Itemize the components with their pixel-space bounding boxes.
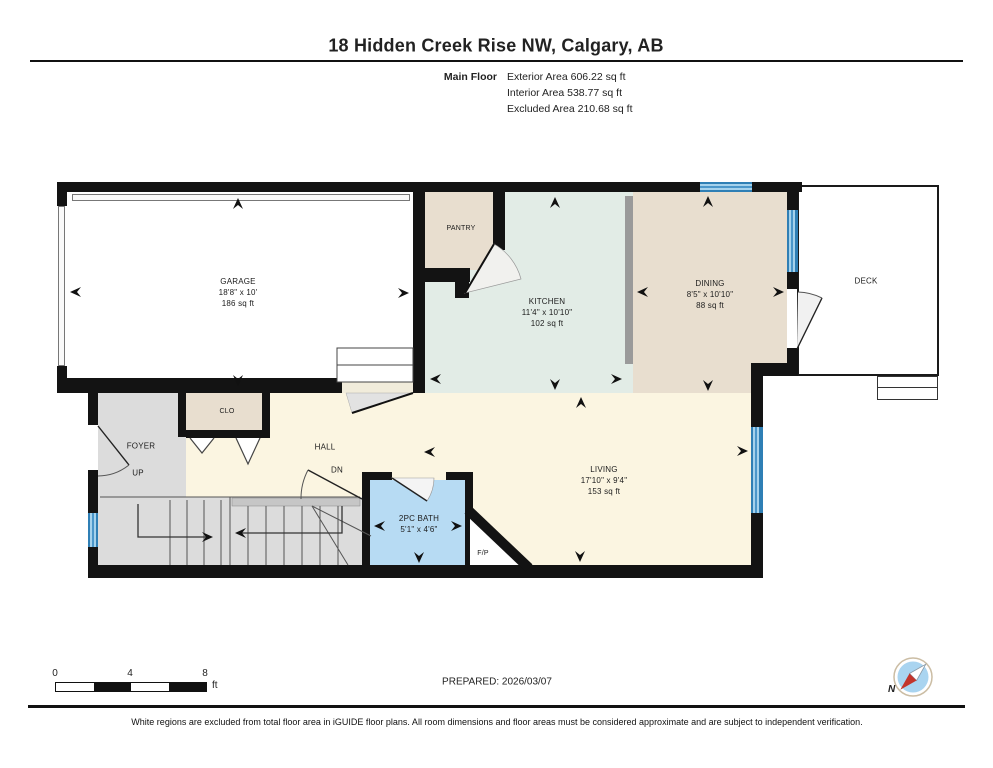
dining-floor-lower: [633, 363, 751, 393]
wall: [88, 547, 98, 565]
room-area: 186 sq ft: [219, 299, 258, 310]
room-name: CLO: [220, 407, 235, 417]
room-dims: 17'10" x 9'4": [581, 475, 627, 486]
wall: [787, 272, 798, 289]
scale-tick-4: 4: [127, 668, 133, 679]
wall: [362, 472, 392, 480]
label-up: UP: [132, 467, 144, 478]
room-name: HALL: [315, 441, 336, 452]
living-floor: [473, 497, 751, 565]
room-name: PANTRY: [447, 224, 476, 234]
room-dims: 18'8" x 10': [219, 287, 258, 298]
scale-unit: ft: [212, 680, 218, 691]
wall: [455, 274, 469, 298]
room-dims: 5'1" x 4'6": [399, 524, 439, 535]
wall: [178, 393, 186, 437]
window: [787, 210, 798, 272]
wall: [413, 192, 425, 393]
wall: [57, 182, 802, 192]
wall: [465, 472, 473, 565]
label-dn: DN: [331, 464, 343, 475]
room-area: 88 sq ft: [687, 301, 733, 312]
wall: [493, 192, 505, 250]
room-label-closet: CLO: [220, 407, 235, 417]
wall: [362, 472, 370, 565]
room-label-bath: 2PC BATH 5'1" x 4'6": [399, 513, 439, 535]
room-name: DINING: [687, 278, 733, 289]
wall: [88, 565, 763, 578]
room-name: FOYER: [127, 440, 156, 451]
room-label-living: LIVING 17'10" x 9'4" 153 sq ft: [581, 464, 627, 498]
room-name: LIVING: [581, 464, 627, 475]
room-area: 102 sq ft: [522, 319, 573, 330]
wall: [787, 182, 798, 210]
half-wall-divider: [625, 196, 633, 364]
wall: [57, 378, 342, 393]
room-name: KITCHEN: [522, 296, 573, 307]
room-label-kitchen: KITCHEN 11'4" x 10'10" 102 sq ft: [522, 296, 573, 330]
wall: [186, 430, 270, 438]
disclaimer-text: White regions are excluded from total fl…: [131, 717, 862, 727]
floor-plan-page: 18 Hidden Creek Rise NW, Calgary, AB Mai…: [0, 0, 993, 768]
stairs-floor: [178, 497, 362, 565]
garage-steps: [337, 348, 413, 382]
window: [700, 182, 752, 192]
label-fireplace: F/P: [477, 549, 489, 559]
wall: [88, 470, 98, 513]
room-label-garage: GARAGE 18'8" x 10' 186 sq ft: [219, 276, 258, 310]
scale-bar: [55, 682, 207, 692]
window: [751, 427, 763, 513]
scale-tick-8: 8: [202, 668, 208, 679]
room-name: 2PC BATH: [399, 513, 439, 524]
footer-divider: [28, 705, 965, 708]
room-label-hall: HALL: [315, 441, 336, 452]
wall: [57, 182, 67, 206]
garage-door: [58, 206, 65, 366]
room-dims: 8'5" x 10'10": [687, 289, 733, 300]
window: [88, 513, 98, 547]
room-label-pantry: PANTRY: [447, 224, 476, 234]
scale-tick-0: 0: [52, 668, 58, 679]
room-name: GARAGE: [219, 276, 258, 287]
prepared-date: PREPARED: 2026/03/07: [442, 677, 552, 688]
wall: [262, 393, 270, 438]
room-name: DECK: [854, 275, 877, 286]
room-label-dining: DINING 8'5" x 10'10" 88 sq ft: [687, 278, 733, 312]
garage-doorway-floor: [342, 380, 413, 393]
room-label-foyer: FOYER: [127, 440, 156, 451]
wall: [751, 375, 763, 427]
compass-icon: [887, 653, 939, 705]
north-label: N: [888, 684, 895, 695]
wall: [787, 348, 798, 364]
dimension-arrow: [70, 287, 81, 297]
garage-door: [72, 194, 410, 201]
wall: [88, 390, 98, 425]
room-label-deck: DECK: [854, 275, 877, 286]
floor-plan: GARAGE 18'8" x 10' 186 sq ft PANTRY KITC…: [0, 0, 993, 768]
room-area: 153 sq ft: [581, 487, 627, 498]
deck-step: [877, 387, 938, 400]
room-dims: 11'4" x 10'10": [522, 307, 573, 318]
foyer-floor: [98, 393, 186, 565]
dimension-arrow: [398, 288, 409, 298]
